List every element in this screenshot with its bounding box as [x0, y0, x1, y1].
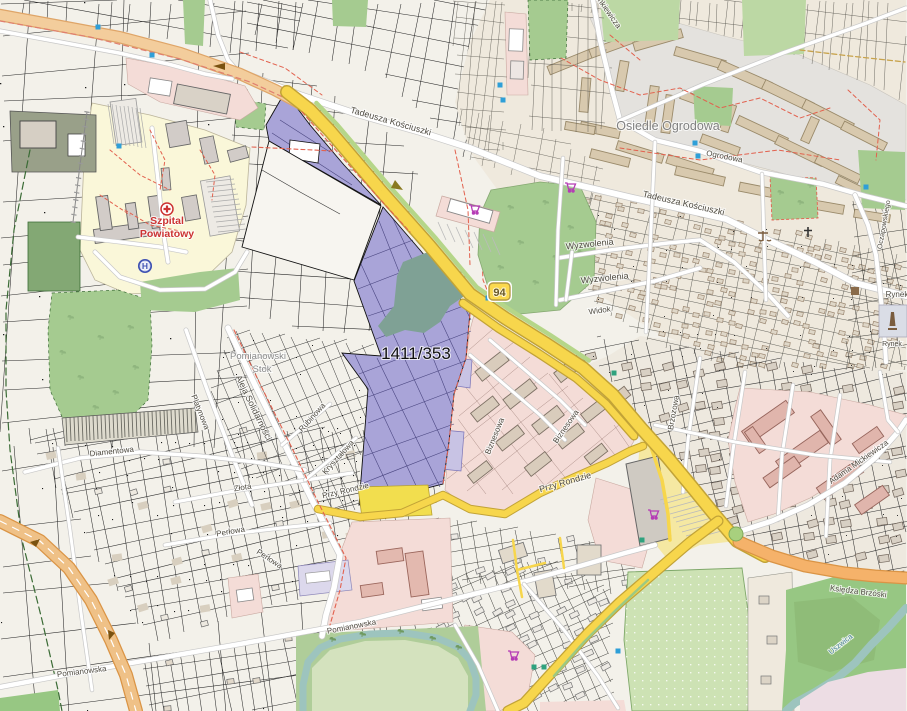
svg-text:Pomianowski: Pomianowski	[230, 351, 286, 362]
svg-text:Powiatowy: Powiatowy	[140, 228, 194, 240]
svg-text:H: H	[142, 261, 148, 271]
svg-text:1411/353: 1411/353	[381, 344, 451, 363]
svg-text:94: 94	[493, 287, 506, 299]
svg-text:Rynek: Rynek	[886, 290, 907, 299]
svg-text:Rynek: Rynek	[882, 341, 902, 348]
svg-text:Stok: Stok	[252, 364, 271, 375]
svg-text:Szpital: Szpital	[150, 215, 184, 227]
svg-text:Osiedle Ogrodowa: Osiedle Ogrodowa	[616, 119, 720, 133]
